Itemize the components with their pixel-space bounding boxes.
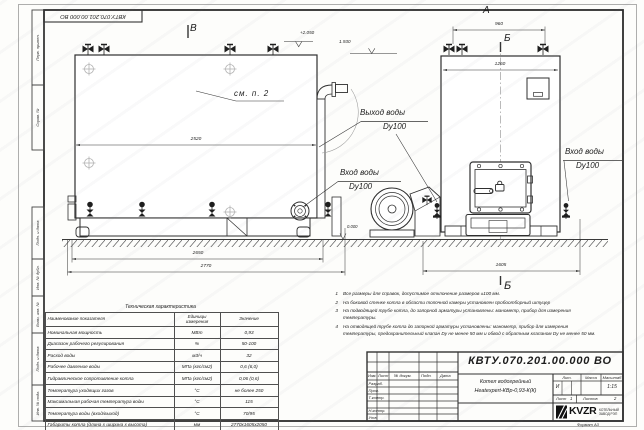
mass-label: Масса [581, 376, 601, 380]
margin-label-perv-primen: Перв. примен. [32, 10, 44, 85]
spec-row: Максимальная рабочая температура воды°С1… [45, 396, 278, 408]
dim-2650: 2650 [182, 252, 214, 257]
col-podp: Подп. [421, 374, 432, 378]
spec-cell: Расход воды [45, 350, 174, 362]
note-number: 2 [330, 299, 338, 306]
lit-value: И [553, 385, 562, 390]
fan [370, 187, 440, 237]
dim-1260: 1260 [480, 63, 520, 68]
col-izm: Изм. [368, 374, 377, 378]
ground-hatch [62, 240, 608, 248]
spec-row: Диапазон рабочего регулирования%50-100 [45, 338, 278, 350]
spec-cell: % [174, 338, 220, 350]
margin-label-podp-data-1: Подп. и дата [32, 207, 44, 259]
spec-cell: Максимальная рабочая температура воды [45, 396, 174, 408]
note-item-1: 1 Все размеры для справок, допустимое от… [330, 290, 602, 297]
scale-value: 1:15 [601, 385, 623, 390]
water-outlet-dy: Dy100 [383, 123, 406, 131]
spec-cell: 0,06 (0,6) [220, 373, 278, 385]
spec-row: Габариты котла (длина х ширина х высота)… [45, 419, 278, 430]
spec-cell: Номинальная мощность [45, 327, 174, 339]
level-top: +2.050 [300, 31, 314, 36]
view-label-a: А [483, 6, 490, 16]
section-label-b-top: Б [504, 34, 511, 44]
row-tkontr: Т.контр. [369, 396, 385, 400]
title-block-doc-number: КВТУ.070.201.00.000 ВО [460, 356, 620, 367]
spec-cell: Рабочее давление воды [45, 361, 174, 373]
spec-cell: не более 250 [220, 384, 278, 396]
spec-row: Номинальная мощностьМВт0,93 [45, 327, 278, 339]
spec-row: Рабочее давление водыМПа (кгс/см2)0,6 (6… [45, 361, 278, 373]
spec-cell: м3/ч [174, 350, 220, 362]
lit-label: Лит. [553, 376, 581, 380]
format-note: Формат А3 [577, 423, 599, 427]
drawing-sheet: Перв. примен. Справ. № Подп. и дата Инв.… [0, 0, 644, 430]
spec-header: Единицы измерения [174, 313, 220, 327]
row-razrab: Разраб. [369, 382, 383, 386]
furnace-door [470, 162, 533, 213]
col-list: Лист [378, 374, 388, 378]
water-inlet-left-label: Вход воды [340, 169, 379, 177]
see-note-annotation: см. п. 2 [234, 90, 269, 98]
margin-label-sprav-no: Справ. № [32, 85, 44, 150]
spec-row: Температура воды (вход/выход)°С70/95 [45, 408, 278, 420]
note-item-4: 4 На отводящей трубе котла до запорной а… [330, 323, 602, 337]
note-text: На боковой стенке котла в области топочн… [343, 299, 602, 306]
spec-row: Температура уходящих газов°Сне более 250 [45, 384, 278, 396]
spec-row: Расход водым3/ч32 [45, 350, 278, 362]
margin-label-vzam-inv: Взам. инв. № [32, 296, 44, 333]
sheets-label: Листов [583, 397, 598, 401]
spec-cell: °С [174, 408, 220, 420]
spec-header-row: Наименование показателя Единицы измерени… [45, 313, 278, 327]
col-doc: № докум. [394, 374, 412, 378]
kvzr-logo-sub: КОТЕЛЬНЫЙ ЗАВОД РЭП [599, 408, 619, 417]
level-ground: 0.000 [347, 225, 357, 229]
top-stamp-doc-number: КВТУ.070.201.00.000 ВО [44, 10, 142, 22]
spec-row: Гидравлическое сопротивление котлаМПа (к… [45, 373, 278, 385]
water-outlet-label: Выход воды [360, 109, 405, 117]
spec-cell: МПа (кгс/см2) [174, 373, 220, 385]
product-name-line1: Котел водогрейный [459, 380, 552, 385]
margin-label-podp-data-2: Подп. и дата [32, 333, 44, 385]
dim-960: 960 [479, 23, 519, 28]
spec-cell: Габариты котла (длина х ширина х высота) [45, 419, 174, 430]
col-data: Дата [440, 374, 451, 378]
note-text: На подводящей трубе котла, до запорной а… [343, 307, 602, 321]
row-nkontr: Н.контр. [369, 409, 386, 413]
note-number: 4 [330, 323, 338, 337]
water-inlet-right-dy: Dy100 [576, 162, 599, 170]
sheet-label: Лист [556, 397, 566, 401]
kvzr-logo-text: KVZR [569, 406, 596, 417]
notes-list: 1 Все размеры для справок, допустимое от… [330, 290, 602, 338]
row-utv: Утв. [369, 416, 378, 420]
sheet-value: 1 [570, 397, 572, 401]
spec-cell: Температура воды (вход/выход) [45, 408, 174, 420]
spec-cell: 50-100 [220, 338, 278, 350]
note-number: 3 [330, 307, 338, 321]
product-name-line2: Heatexpert-КВр-0,93-К(К) [459, 389, 552, 394]
dim-1605: 1605 [481, 264, 521, 269]
water-inlet-left-dy: Dy100 [349, 183, 372, 191]
dim-2770: 2770 [190, 265, 222, 270]
spec-cell: 0,93 [220, 327, 278, 339]
spec-cell: 70/95 [220, 408, 278, 420]
dim-2520: 2520 [181, 138, 211, 143]
note-item-3: 3 На подводящей трубе котла, до запорной… [330, 307, 602, 321]
spec-cell: 115 [220, 396, 278, 408]
spec-cell: МПа (кгс/см2) [174, 361, 220, 373]
sheets-value: 2 [614, 397, 616, 401]
spec-header: Наименование показателя [45, 313, 174, 327]
note-item-2: 2 На боковой стенке котла в области топо… [330, 299, 602, 306]
spec-cell: 2770х1605х2050 [220, 419, 278, 430]
front-view [433, 43, 570, 243]
row-prov: Пров. [369, 389, 380, 393]
spec-cell: Температура уходящих газов [45, 384, 174, 396]
note-text: Все размеры для справок, допустимое откл… [343, 290, 602, 297]
margin-label-inv-podl: Инв. № подл. [32, 385, 44, 421]
view-label-v: В [190, 24, 197, 34]
margin-label-inv-dubl: Инв. № дубл. [32, 259, 44, 296]
spec-table: Наименование показателя Единицы измерени… [45, 312, 279, 430]
level-outlet: 1.930 [339, 40, 351, 45]
spec-cell: мм [174, 419, 220, 430]
water-inlet-right-label: Вход воды [565, 148, 604, 156]
spec-cell: 0,6 (6,0) [220, 361, 278, 373]
spec-cell: Гидравлическое сопротивление котла [45, 373, 174, 385]
spec-table-title: Техническая характеристика [44, 304, 277, 310]
spec-cell: 32 [220, 350, 278, 362]
spec-cell: °С [174, 396, 220, 408]
spec-cell: °С [174, 384, 220, 396]
spec-header: Значение [220, 313, 278, 327]
spec-cell: Диапазон рабочего регулирования [45, 338, 174, 350]
note-text: На отводящей трубе котла до запорной арм… [343, 323, 602, 337]
note-number: 1 [330, 290, 338, 297]
spec-cell: МВт [174, 327, 220, 339]
kvzr-logo-line2: ЗАВОД РЭП [599, 412, 619, 416]
scale-label: Масштаб [601, 376, 623, 380]
